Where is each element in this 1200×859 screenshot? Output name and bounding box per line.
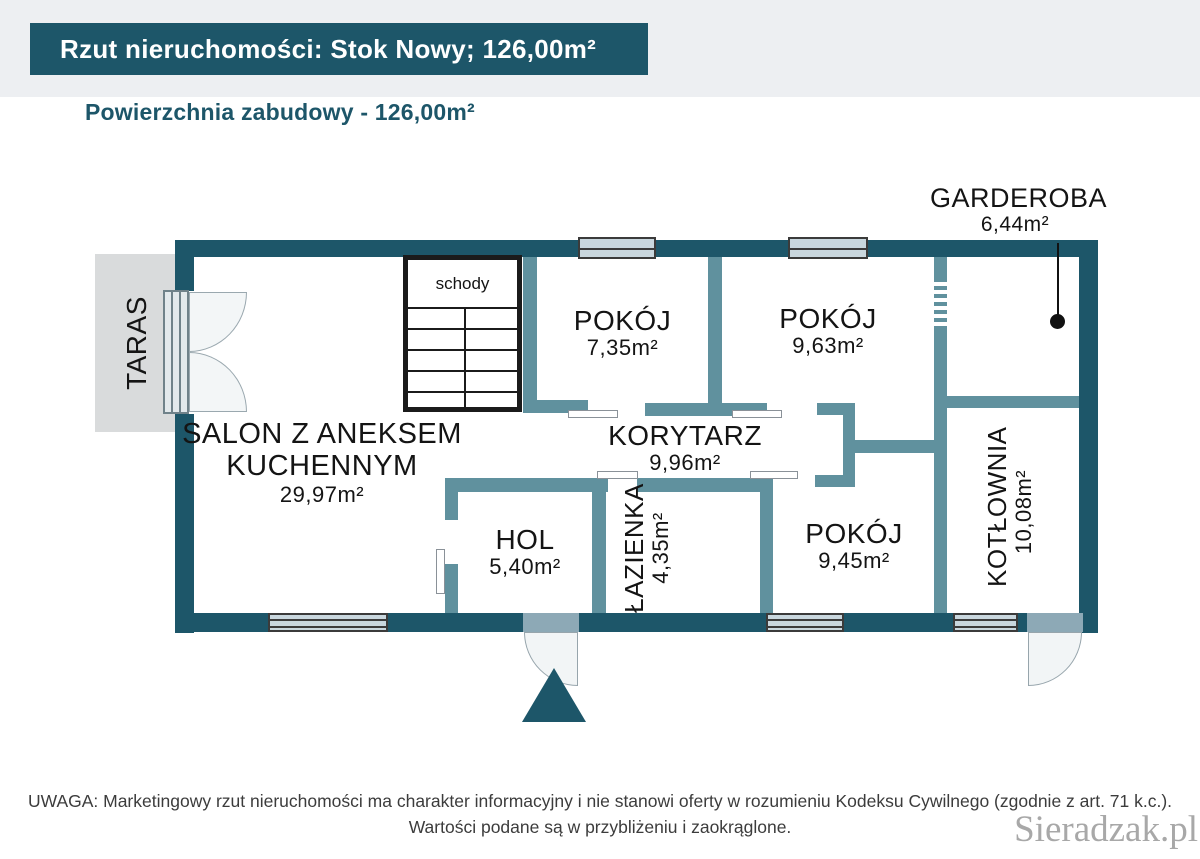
- window-bottom-pokoj3: [766, 613, 844, 632]
- kotlownia-door-leaf: [1027, 613, 1083, 632]
- wall-niche-bottom: [815, 475, 855, 487]
- terrace-label: TARAS: [121, 273, 151, 413]
- wall-hol-top: [445, 478, 608, 492]
- wall-pokoj1-pokoj2: [708, 257, 722, 416]
- room-label-pokoj-2: POKÓJ 9,63m²: [722, 303, 934, 359]
- room-label-lazienka: ŁAZIENKA 4,35m²: [620, 478, 680, 618]
- threshold-hol-salon: [436, 549, 445, 594]
- garderoba-marker-dot: [1050, 314, 1065, 329]
- stair-tread-line: [408, 328, 517, 330]
- threshold-korytarz-salon: [568, 410, 618, 418]
- threshold-pokoj2-door: [732, 410, 782, 418]
- stairs-box: schody: [403, 255, 522, 412]
- room-label-kotlownia: KOTŁOWNIA 10,08m²: [983, 437, 1043, 587]
- stairs-label: schody: [408, 274, 517, 294]
- page-title: Rzut nieruchomości: Stok Nowy; 126,00m²: [60, 34, 596, 65]
- room-label-korytarz: KORYTARZ 9,96m²: [555, 420, 815, 476]
- garderoba-leader-line: [1057, 243, 1059, 319]
- terrace-door-frame: [163, 290, 189, 414]
- title-banner: Rzut nieruchomości: Stok Nowy; 126,00m²: [30, 23, 648, 75]
- window-bottom-kotlownia: [953, 613, 1018, 632]
- wall-garderoba-left-upper: [934, 257, 947, 278]
- building-area-subtitle: Powierzchnia zabudowy - 126,00m²: [85, 99, 475, 126]
- stair-tread-line: [408, 349, 517, 351]
- garderoba-label: GARDEROBA 6,44m²: [930, 183, 1100, 237]
- room-label-salon: SALON Z ANEKSEM KUCHENNYM 29,97m²: [182, 418, 462, 508]
- terrace-door-leaf-top: [189, 292, 247, 352]
- window-top-pokoj2: [788, 237, 868, 259]
- wall-lazienka-pokoj3: [760, 478, 773, 613]
- watermark: Sieradzak.pl: [1014, 808, 1198, 851]
- stair-tread-line: [408, 391, 517, 393]
- room-label-pokoj-3: POKÓJ 9,45m²: [773, 518, 935, 574]
- stair-tread-line: [408, 307, 517, 309]
- wall-garderoba-kotlownia-left: [934, 326, 947, 613]
- room-label-hol: HOL 5,40m²: [458, 524, 592, 580]
- kotlownia-door-swing: [1028, 632, 1082, 686]
- room-label-pokoj-1: POKÓJ 7,35m²: [537, 305, 708, 361]
- wall-outer-right: [1079, 240, 1098, 633]
- terrace-door-leaf-bottom: [189, 352, 247, 412]
- wall-stairs-right: [523, 257, 537, 413]
- stairs-divider-line: [464, 307, 466, 407]
- wall-pokoj1-bottom: [645, 403, 708, 416]
- window-bottom-salon: [268, 613, 388, 632]
- wall-garderoba-bottom: [947, 396, 1079, 408]
- wall-hol-lazienka: [592, 478, 606, 613]
- garderoba-sliding-door: [934, 278, 947, 326]
- wall-outer-left-upper: [175, 240, 194, 291]
- window-top-pokoj1: [578, 237, 656, 259]
- wall-hol-left-lower: [445, 564, 458, 613]
- entrance-arrow-icon: [522, 668, 586, 722]
- stair-tread-line: [408, 370, 517, 372]
- entrance-door-leaf: [523, 613, 579, 632]
